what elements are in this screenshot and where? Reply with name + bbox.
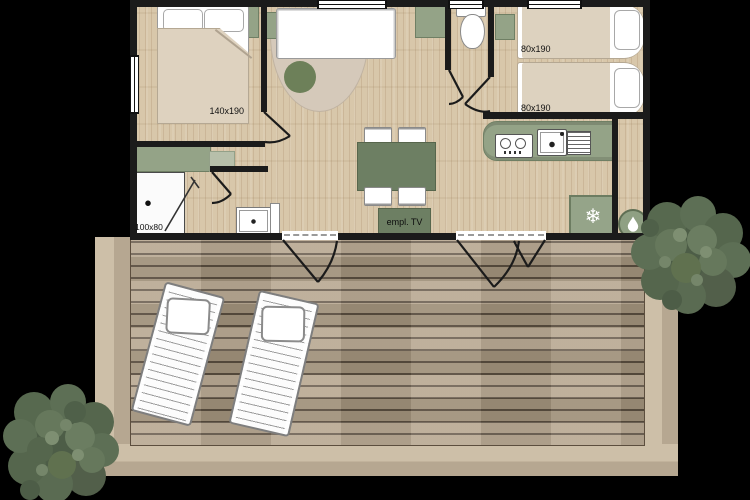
wall-twin-left — [488, 0, 494, 77]
snowflake-icon: ❄ — [585, 207, 602, 227]
wall-left — [130, 0, 137, 240]
washbasin — [236, 207, 271, 235]
window-twin-bedroom — [527, 0, 582, 9]
single-bed-bottom-size-label: 80x190 — [521, 103, 551, 114]
wall-master-bottom — [130, 141, 265, 147]
deck-frame-right — [643, 237, 678, 476]
double-bed-size-label: 140x190 — [196, 106, 244, 117]
wardrobe-hall — [495, 14, 515, 40]
open-door-leaf — [270, 203, 280, 235]
bathroom-vanity — [133, 146, 211, 172]
dining-table — [357, 142, 436, 191]
deck-frame-left — [95, 237, 130, 476]
pouf — [284, 61, 316, 93]
cooktop — [495, 134, 533, 158]
wall-right — [643, 0, 650, 240]
shower-size-label: 100x80 — [135, 222, 163, 233]
pillow — [614, 10, 640, 50]
window-wc — [448, 0, 484, 9]
lounger-cushion — [165, 297, 211, 335]
window-master-bedroom — [130, 55, 139, 114]
wall-tech-closet — [612, 118, 618, 240]
wall-master-right — [261, 0, 267, 112]
tv-location-label: empl. TV — [387, 217, 423, 227]
chair — [364, 187, 392, 206]
patio-door-sill-left — [282, 231, 338, 240]
wall-front — [130, 233, 650, 240]
wall-twin-bottom — [483, 112, 650, 119]
deck-frame-bottom — [95, 444, 678, 476]
sofa — [276, 8, 396, 59]
tv-stand: empl. TV — [378, 208, 431, 235]
cabinet-right-of-sofa — [415, 5, 448, 38]
water-drop-icon — [627, 216, 639, 232]
window-living — [317, 0, 387, 9]
drainboard — [567, 131, 591, 155]
chair — [398, 187, 426, 206]
wall-bathroom — [210, 166, 268, 172]
toilet-bowl — [460, 14, 485, 49]
patio-door-sill-right — [456, 231, 546, 240]
pillow — [614, 68, 640, 108]
kitchen-sink — [537, 129, 567, 156]
floor-plan: 140x190 80x190 80x190 ❄ empl. TV — [0, 0, 750, 500]
wall-wc-left — [445, 0, 451, 70]
cooktop-knobs — [504, 151, 524, 154]
single-bed-top-size-label: 80x190 — [521, 44, 551, 55]
lounger-cushion — [261, 306, 306, 343]
